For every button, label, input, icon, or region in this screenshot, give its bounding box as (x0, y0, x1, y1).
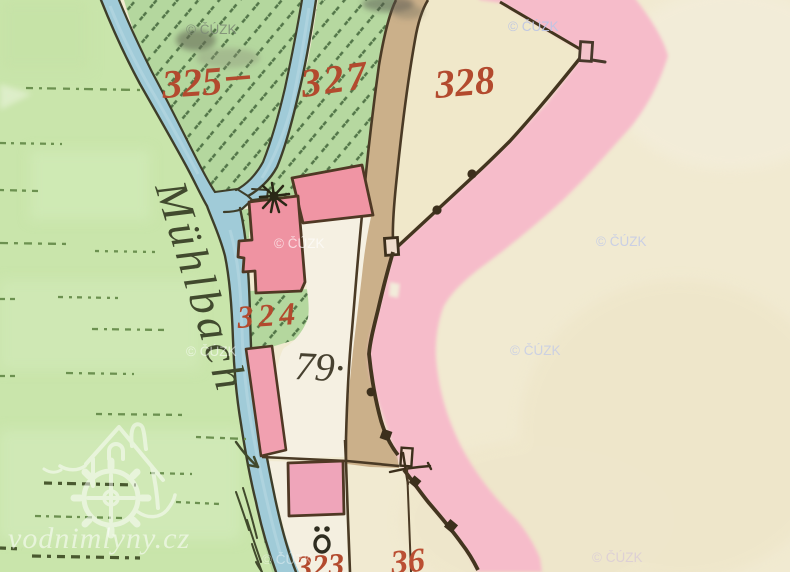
svg-text:vodnimlyny.cz: vodnimlyny.cz (8, 522, 190, 555)
svg-text:328: 328 (432, 57, 497, 107)
svg-text:© ČÚZK: © ČÚZK (592, 550, 642, 565)
svg-text:© ČÚZK: © ČÚZK (508, 19, 558, 34)
svg-text:© ČÚZK: © ČÚZK (186, 344, 236, 359)
svg-text:324: 324 (235, 295, 301, 335)
svg-text:© ČÚZK: © ČÚZK (596, 234, 646, 249)
svg-text:© ČÚZK: © ČÚZK (274, 236, 324, 251)
svg-text:36: 36 (388, 542, 427, 572)
svg-text:© ČÚZK: © ČÚZK (510, 343, 560, 358)
svg-text:79·: 79· (294, 343, 346, 391)
svg-text:© ČÚZK: © ČÚZK (262, 552, 312, 567)
svg-text:© ČÚZK: © ČÚZK (186, 22, 236, 37)
